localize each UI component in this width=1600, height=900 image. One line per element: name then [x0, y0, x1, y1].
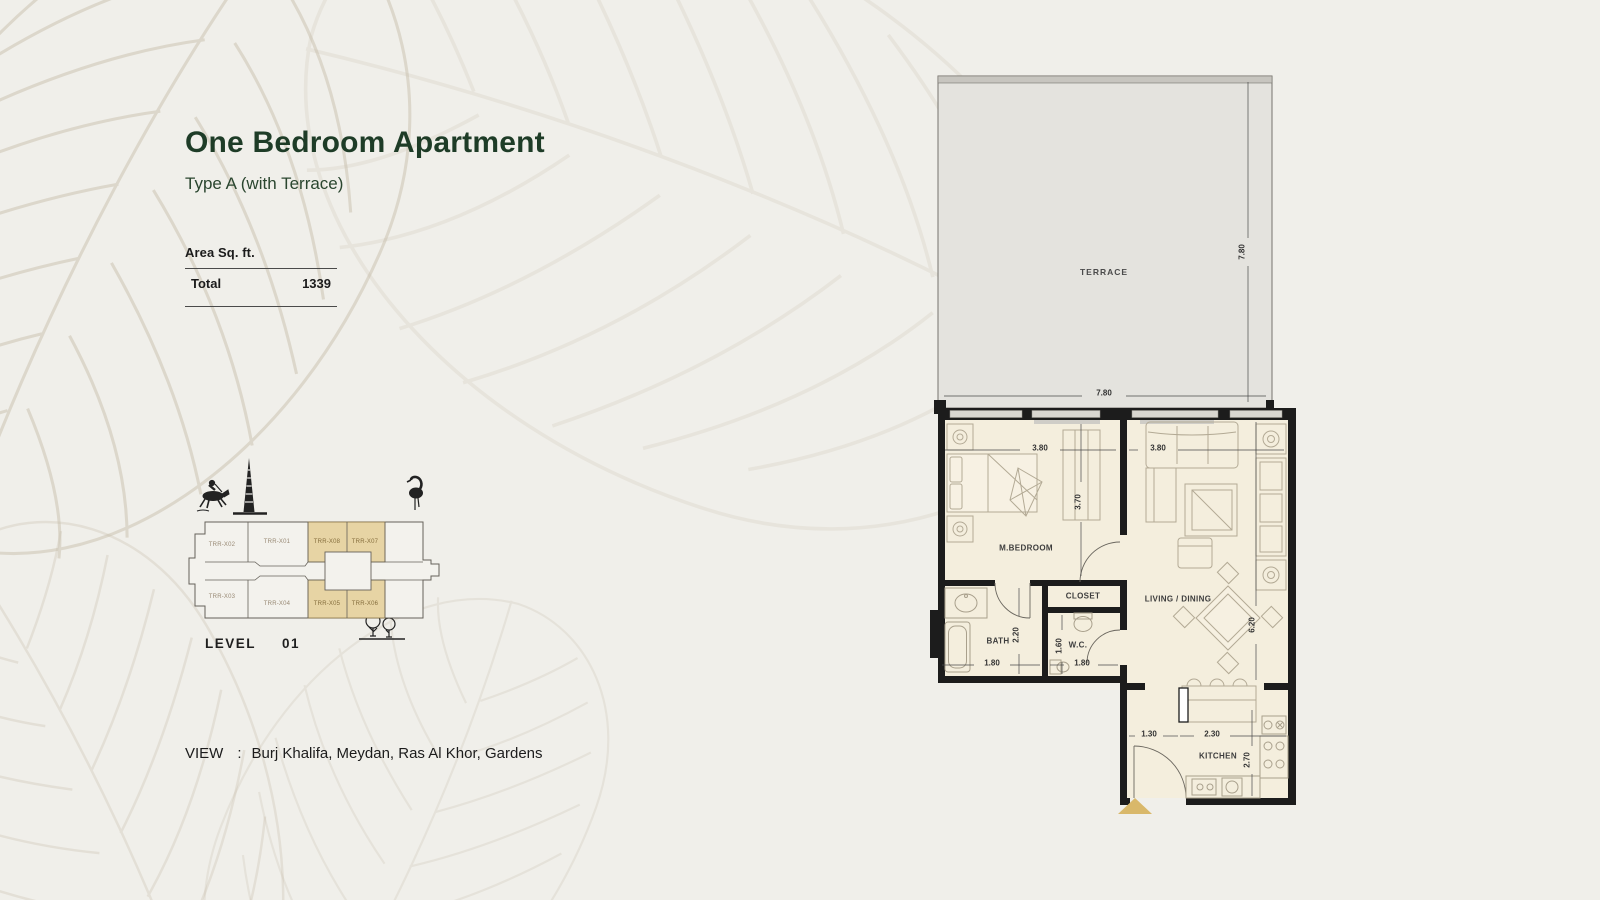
area-total-label: Total [191, 276, 221, 291]
view-value: Burj Khalifa, Meydan, Ras Al Khor, Garde… [252, 745, 543, 762]
key-plan-unit-label: TRR-X03 [209, 594, 235, 600]
key-plan: TRR-X02 TRR-X01 TRR-X08 TRR-X07 TRR-X03 … [185, 450, 441, 655]
area-table: Area Sq. ft. Total 1339 [185, 245, 337, 307]
burj-khalifa-icon [233, 458, 267, 514]
view-line: VIEW:Burj Khalifa, Meydan, Ras Al Khor, … [185, 745, 543, 762]
dim-bedroom-width: 3.80 [1032, 444, 1048, 453]
area-table-header: Area Sq. ft. [185, 245, 337, 260]
kitchen-door-panel [1179, 688, 1188, 722]
room-label-terrace: TERRACE [1080, 267, 1128, 277]
page-title: One Bedroom Apartment [185, 126, 545, 160]
page-subtitle: Type A (with Terrace) [185, 174, 343, 194]
flamingo-icon [407, 477, 423, 510]
level-value: 01 [282, 636, 300, 651]
brochure-page: One Bedroom Apartment Type A (with Terra… [0, 0, 1600, 900]
key-plan-unit-label: TRR-X04 [264, 601, 290, 607]
dim-bedroom-depth: 3.70 [1074, 494, 1083, 510]
view-colon: : [237, 745, 241, 762]
room-label-bath: BATH [986, 637, 1009, 646]
floor-plan-drawing [930, 70, 1310, 825]
key-plan-unit-label: TRR-X05 [314, 601, 340, 607]
meydan-polo-icon [197, 480, 229, 511]
room-label-master-bedroom: M.BEDROOM [999, 544, 1053, 553]
dim-living-depth: 6.20 [1248, 617, 1257, 633]
key-plan-unit-label: TRR-X01 [264, 539, 290, 545]
dim-wc-depth: 1.60 [1055, 638, 1064, 654]
level-indicator: LEVEL01 [205, 636, 300, 651]
view-label: VIEW [185, 745, 223, 762]
key-plan-drawing [185, 450, 441, 655]
room-label-closet: CLOSET [1066, 592, 1101, 601]
room-label-wc: W.C. [1069, 641, 1088, 650]
dim-wc-width: 1.80 [1074, 659, 1090, 668]
dim-terrace-depth: 7.80 [1238, 244, 1247, 260]
floor-plan: TERRACE M.BEDROOM CLOSET LIVING / DINING… [930, 70, 1310, 825]
room-label-living-dining: LIVING / DINING [1145, 595, 1212, 604]
room-label-kitchen: KITCHEN [1199, 752, 1237, 761]
terrace-area [934, 76, 1274, 414]
area-total-value: 1339 [302, 276, 331, 291]
dim-bath-width: 1.80 [984, 659, 1000, 668]
area-table-rule-bottom [185, 306, 337, 307]
key-plan-unit-label: TRR-X02 [209, 542, 235, 548]
dim-terrace-width: 7.80 [1096, 389, 1112, 398]
level-label: LEVEL [205, 636, 256, 651]
dim-kitchen-depth: 2.70 [1243, 752, 1252, 768]
dim-hall-width: 1.30 [1141, 730, 1157, 739]
dim-kitchen-width: 2.30 [1204, 730, 1220, 739]
key-plan-unit-label: TRR-X08 [314, 539, 340, 545]
key-plan-unit-label: TRR-X07 [352, 539, 378, 545]
dim-living-width: 3.80 [1150, 444, 1166, 453]
dim-bath-depth: 2.20 [1012, 627, 1021, 643]
key-plan-core [325, 552, 371, 590]
key-plan-unit-label: TRR-X06 [352, 601, 378, 607]
